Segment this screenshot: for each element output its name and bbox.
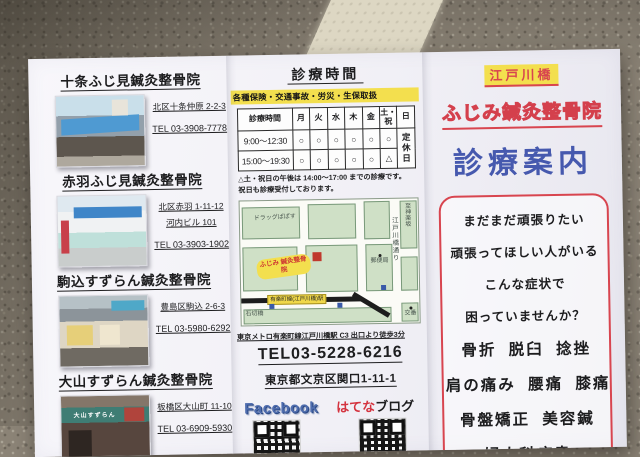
mark-cell: ○ — [310, 149, 328, 169]
clinic-address: 豊島区駒込 2-6-3 — [155, 300, 230, 313]
day-fri: 金 — [362, 107, 380, 129]
clinic-block-akabane: 赤羽ふじ見鍼灸整骨院 北区赤羽 1-11-12 河内ビル 101 TEL 03-… — [44, 168, 222, 268]
symptom-line: 肩の痛み 腰痛 膝痛 — [446, 371, 608, 396]
clinic-name: 十条ふじ見鍼灸整骨院 — [42, 68, 218, 91]
mark-cell: ○ — [328, 149, 346, 169]
clinic-tel: TEL 03-3908-7778 — [152, 123, 227, 134]
storefront-photo — [55, 94, 146, 168]
insurance-banner: 各種保険・交通事故・労災・生保取扱 — [231, 87, 419, 104]
map-dot-icon — [409, 306, 412, 309]
clinic-address: 北区赤羽 1-11-12 — [154, 200, 229, 213]
message-line: まだまだ頑張りたい — [443, 208, 605, 230]
map-label-bridge: 石切橋 — [245, 311, 263, 318]
awning-shape — [61, 114, 140, 136]
map-block — [364, 200, 391, 238]
guide-title: 診療案内 — [434, 136, 613, 183]
clinic-block-jujo: 十条ふじ見鍼灸整骨院 北区十条仲原 2-2-3 TEL 03-3908-7778 — [42, 68, 220, 168]
mark-cell: ○ — [363, 149, 381, 169]
social-row: Facebook はてなブログ — [242, 395, 420, 417]
map-block — [308, 203, 357, 239]
main-address-text: 東京都文京区関口1-11-1 — [265, 372, 397, 388]
mark-cell: ○ — [327, 129, 345, 149]
clinic-building-icon — [312, 252, 321, 261]
hours-header-row: 診療時間 月 火 水 木 金 土・祝 日 — [237, 106, 414, 131]
main-tel-text: TEL03-5228-6216 — [258, 343, 403, 365]
clinic-name-text: 駒込すずらん鍼灸整骨院 — [57, 272, 211, 292]
qr-finder-icon — [360, 420, 375, 435]
hours-header-time: 診療時間 — [237, 108, 292, 131]
day-sat-hol: 土・祝 — [379, 106, 397, 128]
mark-cell: ○ — [345, 149, 363, 169]
building-shape — [112, 100, 128, 116]
closed-day-cell: 定休日 — [397, 128, 415, 168]
time-slot: 15:00～19:30 — [238, 150, 293, 171]
day-wed: 水 — [327, 107, 345, 129]
main-clinic-name: ふじみ鍼灸整骨院 — [442, 96, 603, 130]
hatena-qr-code — [358, 417, 407, 457]
clinic-tel: TEL 03-5980-6292 — [156, 323, 231, 334]
symptom-line: 婦人科疾患 — [447, 441, 609, 457]
station-label: 有楽町線(江戸川橋)駅 — [267, 294, 326, 305]
facebook-qr-code — [252, 419, 301, 457]
mark-cell: △ — [380, 148, 398, 168]
panel-hours-access: 診療時間 各種保険・交通事故・労災・生保取扱 診療時間 月 火 水 木 金 土・… — [226, 52, 429, 453]
message-line: 困っていませんか？ — [444, 304, 606, 326]
map-label-police-box-text: 交番 — [404, 310, 416, 316]
clinic-name: 駒込すずらん鍼灸整骨院 — [46, 268, 222, 291]
clinic-pamphlet: 十条ふじ見鍼灸整骨院 北区十条仲原 2-2-3 TEL 03-3908-7778… — [28, 49, 627, 457]
access-line: 東京メトロ有楽町線江戸川橋駅 C3 出口より徒歩3分 — [237, 329, 419, 342]
clinic-block-oyama: 大山すずらん鍼灸整骨院 大山すずらん 板橋区大山町 11-10 TEL 03-6… — [47, 368, 225, 457]
map-block — [365, 243, 393, 290]
day-thu: 木 — [344, 107, 362, 129]
map-label-post-office: 郵便局 — [370, 253, 388, 264]
clinic-name-text: 赤羽ふじ見鍼灸整骨院 — [62, 172, 202, 191]
map-label-police-box: 交番 — [404, 306, 416, 317]
symptoms-box: まだまだ頑張りたい 頑張ってほしい人がいる こんな症状で 困っていませんか？ 骨… — [438, 193, 613, 457]
main-address: 東京都文京区関口1-11-1 — [242, 369, 420, 388]
main-tel: TEL03-5228-6216 — [241, 343, 419, 364]
symptom-line: 骨折 脱臼 捻挫 — [445, 336, 607, 361]
time-slot: 9:00～12:30 — [238, 130, 293, 151]
clinic-name: 赤羽ふじ見鍼灸整骨院 — [44, 168, 220, 191]
hatena-blog-label: はてなブログ — [336, 395, 414, 415]
hours-note-2: 祝日も診療受付しております。 — [238, 182, 416, 196]
mark-cell: ○ — [362, 129, 380, 149]
hatena-label-red: はてな — [336, 399, 375, 415]
clinic-address: 北区十条仲原 2-2-3 — [152, 100, 227, 113]
qr-finder-icon — [254, 422, 269, 437]
map-label-kagurazaka: 至神楽坂 — [403, 202, 410, 226]
mark-cell: ○ — [380, 128, 398, 148]
panel-branch-clinics: 十条ふじ見鍼灸整骨院 北区十条仲原 2-2-3 TEL 03-3908-7778… — [28, 56, 233, 457]
hours-table: 診療時間 月 火 水 木 金 土・祝 日 9:00～12:30 ○ ○ ○ ○ … — [237, 105, 416, 171]
subway-exit-icon — [337, 302, 342, 307]
sign-shape — [111, 300, 145, 311]
location-tag: 江戸川橋 — [484, 64, 558, 87]
message-line: こんな症状で — [444, 272, 606, 294]
qr-row — [242, 417, 421, 457]
storefront-sign-text: 大山すずらん — [73, 410, 115, 420]
window-shape — [100, 325, 120, 345]
day-sun: 日 — [397, 106, 415, 128]
storefront-photo — [56, 194, 147, 268]
window-shape — [67, 325, 94, 345]
clinic-name-text: 十条ふじ見鍼灸整骨院 — [60, 72, 200, 91]
hand-drawn-map: 有楽町線(江戸川橋)駅 ふじみ 鍼灸整骨院 ドラッグぱぱす 至神楽坂 江戸川橋通… — [239, 197, 421, 326]
message-line: 頑張ってほしい人がいる — [443, 240, 605, 262]
day-mon: 月 — [292, 108, 310, 130]
clinic-name: 大山すずらん鍼灸整骨院 — [47, 368, 223, 391]
subway-exit-icon — [381, 285, 386, 290]
hatena-label-black: ブログ — [375, 398, 414, 414]
map-block — [243, 306, 391, 324]
mark-cell: ○ — [293, 150, 311, 170]
qr-finder-icon — [283, 421, 298, 436]
subway-exit-icon — [269, 303, 274, 308]
mark-cell: ○ — [345, 129, 363, 149]
clinic-block-komagome: 駒込すずらん鍼灸整骨院 豊島区駒込 2-6-3 TEL 03-5980-6292 — [46, 268, 224, 368]
hours-title: 診療時間 — [236, 62, 414, 85]
red-sign-shape — [60, 220, 69, 254]
storefront-photo — [58, 294, 149, 368]
sign-shape — [73, 206, 142, 218]
mark-cell: ○ — [310, 129, 328, 149]
door-shape — [69, 430, 92, 457]
facebook-label: Facebook — [244, 399, 318, 417]
clinic-address2: 河内ビル 101 — [154, 216, 229, 229]
hours-row-afternoon: 15:00～19:30 ○ ○ ○ ○ ○ △ — [238, 148, 415, 171]
clinic-address: 板橋区大山町 11-10 — [157, 400, 232, 413]
hours-title-text: 診療時間 — [287, 65, 363, 84]
map-label-street: 江戸川橋通り — [390, 216, 398, 261]
symptom-line: 骨盤矯正 美容鍼 — [446, 406, 608, 431]
day-tue: 火 — [310, 107, 328, 129]
clinic-tel: TEL 03-3903-1902 — [154, 239, 229, 250]
map-dot-icon — [378, 254, 381, 257]
mark-cell: ○ — [292, 130, 310, 150]
map-block — [242, 206, 301, 239]
clinic-tel: TEL 03-6909-5930 — [157, 423, 232, 434]
map-block — [401, 256, 419, 290]
qr-finder-icon — [389, 419, 404, 434]
red-sign-shape — [125, 407, 145, 421]
panel-guide: 江戸川橋 ふじみ鍼灸整骨院 診療案内 まだまだ頑張りたい 頑張ってほしい人がいる… — [422, 49, 627, 450]
clinic-name-text: 大山すずらん鍼灸整骨院 — [59, 372, 213, 392]
map-label-post-office-text: 郵便局 — [371, 257, 389, 263]
